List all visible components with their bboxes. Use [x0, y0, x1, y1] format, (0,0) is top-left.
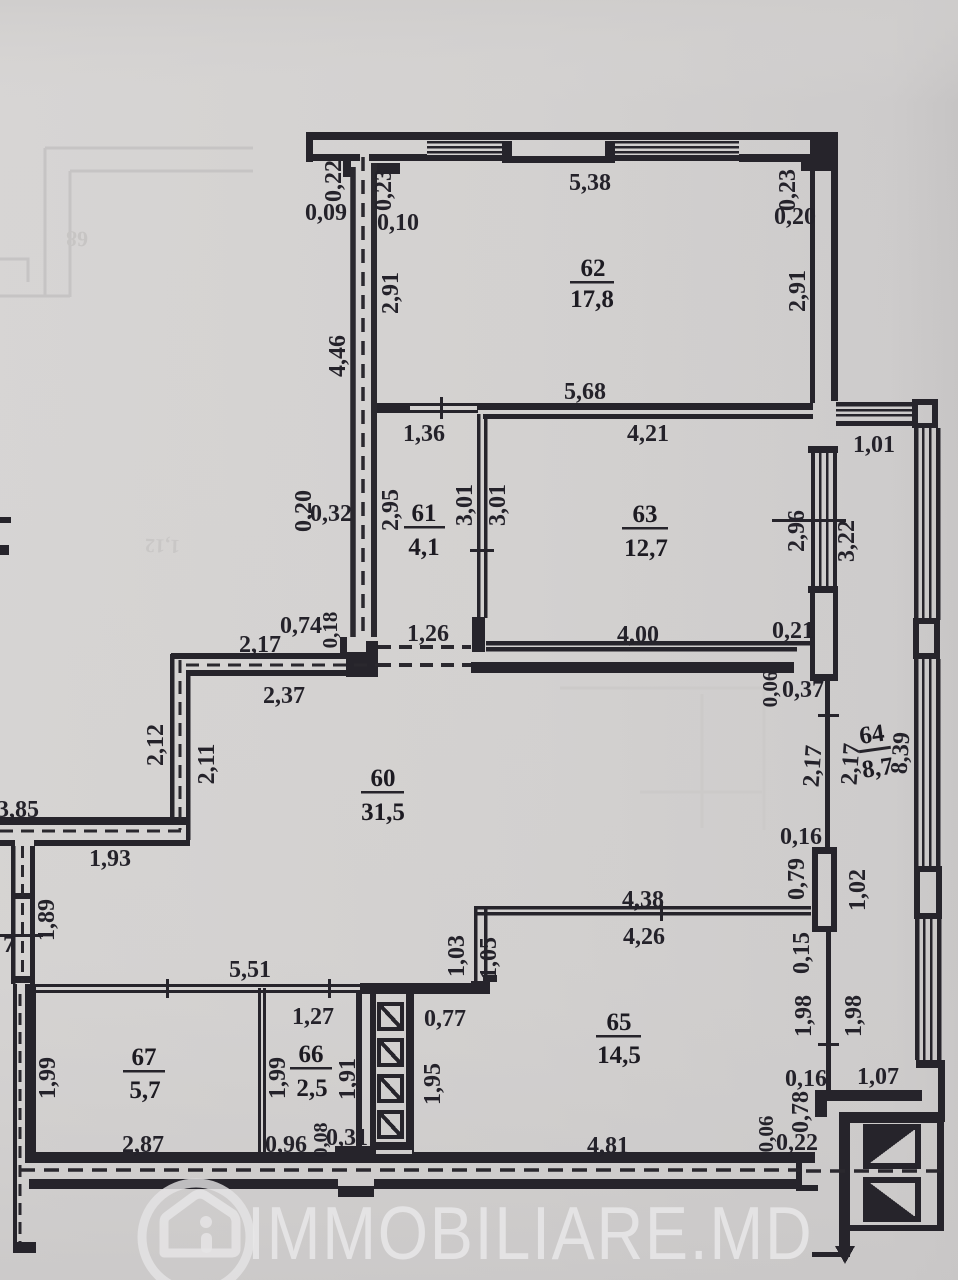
svg-text:3,22: 3,22	[834, 520, 860, 562]
svg-text:0,22: 0,22	[321, 160, 347, 202]
svg-text:3,85: 3,85	[0, 797, 39, 823]
svg-text:1,89: 1,89	[34, 899, 60, 941]
svg-text:0,37: 0,37	[782, 677, 824, 703]
svg-text:4,81: 4,81	[587, 1133, 629, 1159]
svg-text:8,39: 8,39	[887, 731, 916, 775]
svg-text:0,79: 0,79	[784, 858, 810, 900]
svg-text:4,21: 4,21	[627, 421, 669, 447]
svg-text:4,26: 4,26	[623, 924, 665, 950]
svg-text:0,21: 0,21	[772, 618, 814, 644]
svg-text:1,12: 1,12	[145, 534, 181, 557]
svg-text:2,17: 2,17	[799, 744, 828, 788]
svg-text:14,5: 14,5	[597, 1042, 641, 1069]
svg-text:0,32: 0,32	[310, 501, 352, 527]
svg-text:0,16: 0,16	[785, 1066, 827, 1092]
svg-text:1,01: 1,01	[853, 432, 895, 458]
svg-text:5,38: 5,38	[569, 170, 611, 196]
svg-text:1,99: 1,99	[35, 1057, 61, 1099]
svg-text:2,37: 2,37	[263, 683, 305, 709]
svg-text:2,17: 2,17	[837, 742, 866, 786]
svg-text:1,36: 1,36	[403, 421, 445, 447]
svg-text:67: 67	[132, 1044, 157, 1071]
svg-text:0,74: 0,74	[280, 613, 322, 639]
svg-text:3,01: 3,01	[452, 484, 478, 526]
svg-text:3,01: 3,01	[485, 484, 511, 526]
svg-text:2,96: 2,96	[784, 510, 810, 552]
svg-text:5,68: 5,68	[564, 379, 606, 405]
svg-text:63: 63	[633, 501, 658, 528]
svg-text:4,46: 4,46	[325, 335, 351, 377]
svg-text:1,93: 1,93	[89, 846, 131, 872]
svg-text:1,95: 1,95	[420, 1063, 446, 1105]
svg-text:2,5: 2,5	[296, 1075, 327, 1102]
svg-text:5,7: 5,7	[129, 1077, 160, 1104]
svg-text:2,95: 2,95	[378, 489, 404, 531]
svg-text:0,96: 0,96	[265, 1132, 307, 1158]
svg-text:1,02: 1,02	[845, 869, 871, 911]
svg-text:0,09: 0,09	[305, 200, 347, 226]
svg-text:0,23: 0,23	[371, 169, 397, 211]
svg-text:2,91: 2,91	[378, 272, 404, 314]
svg-text:0,10: 0,10	[377, 210, 419, 236]
svg-text:2,11: 2,11	[194, 744, 220, 785]
svg-text:1,26: 1,26	[407, 621, 449, 647]
svg-text:2,91: 2,91	[785, 270, 811, 312]
svg-text:1,98: 1,98	[841, 995, 867, 1037]
svg-text:1,98: 1,98	[791, 995, 817, 1037]
svg-text:61: 61	[412, 500, 437, 527]
svg-text:31,5: 31,5	[361, 799, 405, 826]
svg-text:4,1: 4,1	[408, 534, 439, 561]
svg-text:0,31: 0,31	[326, 1125, 368, 1151]
svg-text:2,17: 2,17	[239, 632, 281, 658]
svg-text:2,87: 2,87	[122, 1132, 164, 1158]
svg-text:1,03: 1,03	[444, 935, 470, 977]
svg-text:60: 60	[371, 765, 396, 792]
svg-text:0,78: 0,78	[788, 1091, 814, 1133]
svg-text:7: 7	[3, 932, 15, 958]
svg-text:4,38: 4,38	[622, 887, 664, 913]
svg-text:1,91: 1,91	[335, 1058, 361, 1100]
svg-text:0,06: 0,06	[754, 1116, 778, 1153]
svg-text:0,18: 0,18	[318, 612, 342, 649]
svg-text:0,08: 0,08	[310, 1123, 332, 1158]
svg-text:0,23: 0,23	[775, 169, 801, 211]
svg-text:4,00: 4,00	[617, 622, 659, 648]
svg-text:2,12: 2,12	[143, 724, 169, 766]
svg-text:0,16: 0,16	[780, 824, 822, 850]
svg-text:66: 66	[299, 1041, 324, 1068]
svg-text:17,8: 17,8	[570, 286, 614, 313]
svg-text:IMMOBILIARE.MD: IMMOBILIARE.MD	[247, 1192, 813, 1276]
svg-text:0,77: 0,77	[424, 1006, 466, 1032]
svg-text:0,15: 0,15	[789, 932, 815, 974]
svg-text:62: 62	[581, 255, 606, 282]
svg-text:68: 68	[66, 226, 89, 252]
svg-text:65: 65	[607, 1009, 632, 1036]
svg-text:0,06: 0,06	[758, 671, 782, 708]
svg-text:1,27: 1,27	[292, 1004, 334, 1030]
svg-text:1,07: 1,07	[857, 1064, 899, 1090]
svg-text:5,51: 5,51	[229, 957, 271, 983]
svg-text:1,99: 1,99	[265, 1057, 291, 1099]
svg-text:12,7: 12,7	[624, 535, 668, 562]
svg-text:1,05: 1,05	[476, 937, 502, 979]
